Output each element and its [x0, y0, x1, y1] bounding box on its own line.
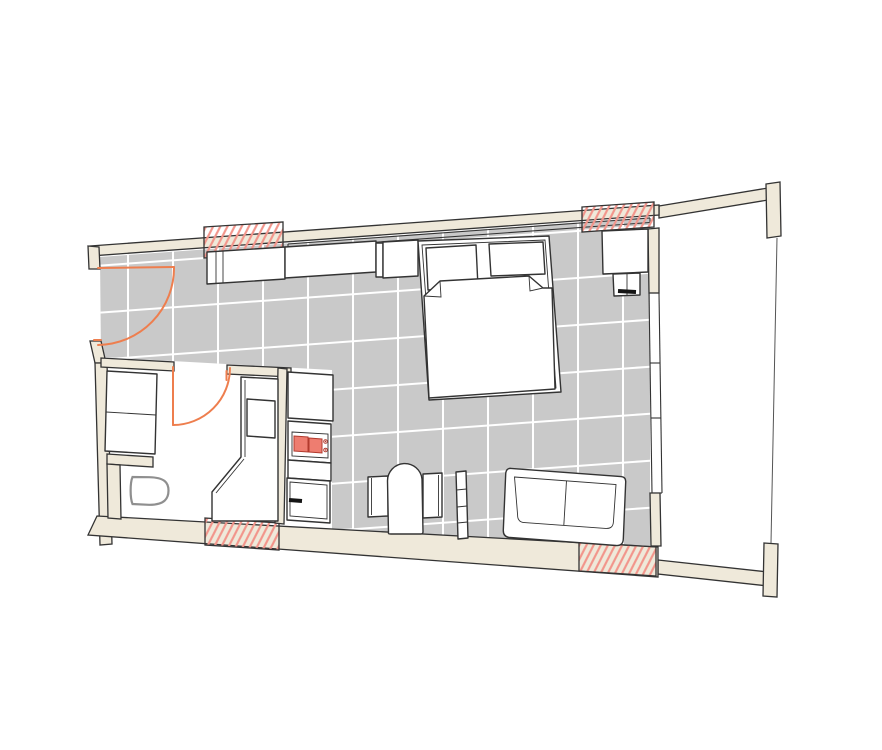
desk-left-leaf [368, 476, 388, 517]
east-window-wall [648, 228, 662, 546]
hatched-wall-opening-bottom-left [205, 518, 279, 550]
desk-right-leaf [423, 473, 442, 518]
oven-handle [289, 500, 302, 501]
bathroom-partition-vertical [107, 464, 121, 519]
east-wall-top-pier [648, 228, 659, 293]
kitchenette [287, 372, 333, 523]
balcony [658, 182, 781, 597]
wall-pier [376, 243, 383, 277]
balcony-partition-tbar-top [766, 182, 781, 238]
vanity-sink [247, 399, 275, 438]
hatched-wall-opening-bottom-right [579, 542, 656, 576]
radiator [456, 471, 468, 539]
side-stool-bar [618, 291, 636, 292]
hatched-wall-opening-top-right [582, 202, 654, 232]
east-wall-bottom-pier [650, 493, 661, 546]
entrance-door-leaf [98, 267, 174, 268]
wardrobe-left [207, 247, 285, 284]
kitchen-cabinet [288, 372, 333, 421]
balcony-partition-tbar-bottom [763, 543, 778, 597]
nightstand [602, 229, 648, 274]
two-seat-sofa [503, 468, 625, 545]
bathroom [101, 358, 291, 524]
wardrobe-center [285, 241, 376, 278]
bathroom-door-swing [173, 367, 230, 425]
floor-plan-canvas [0, 0, 882, 750]
double-bed [418, 236, 561, 400]
duvet [424, 276, 555, 398]
wardrobe-right [383, 240, 418, 278]
east-window-outer-line [659, 293, 662, 493]
toilet [131, 477, 169, 505]
balcony-partition-wall-bottom [658, 560, 768, 586]
pillow-right [489, 242, 545, 276]
balcony-railing [771, 238, 777, 543]
chair [387, 464, 423, 534]
balcony-partition-wall-top [659, 188, 768, 218]
bathroom-door-arc [173, 368, 230, 425]
stove-burner-left [294, 436, 308, 452]
west-wall-above-entrance [88, 246, 100, 269]
floor-plan-drawing [0, 0, 882, 750]
stove-burner-right [309, 438, 322, 453]
